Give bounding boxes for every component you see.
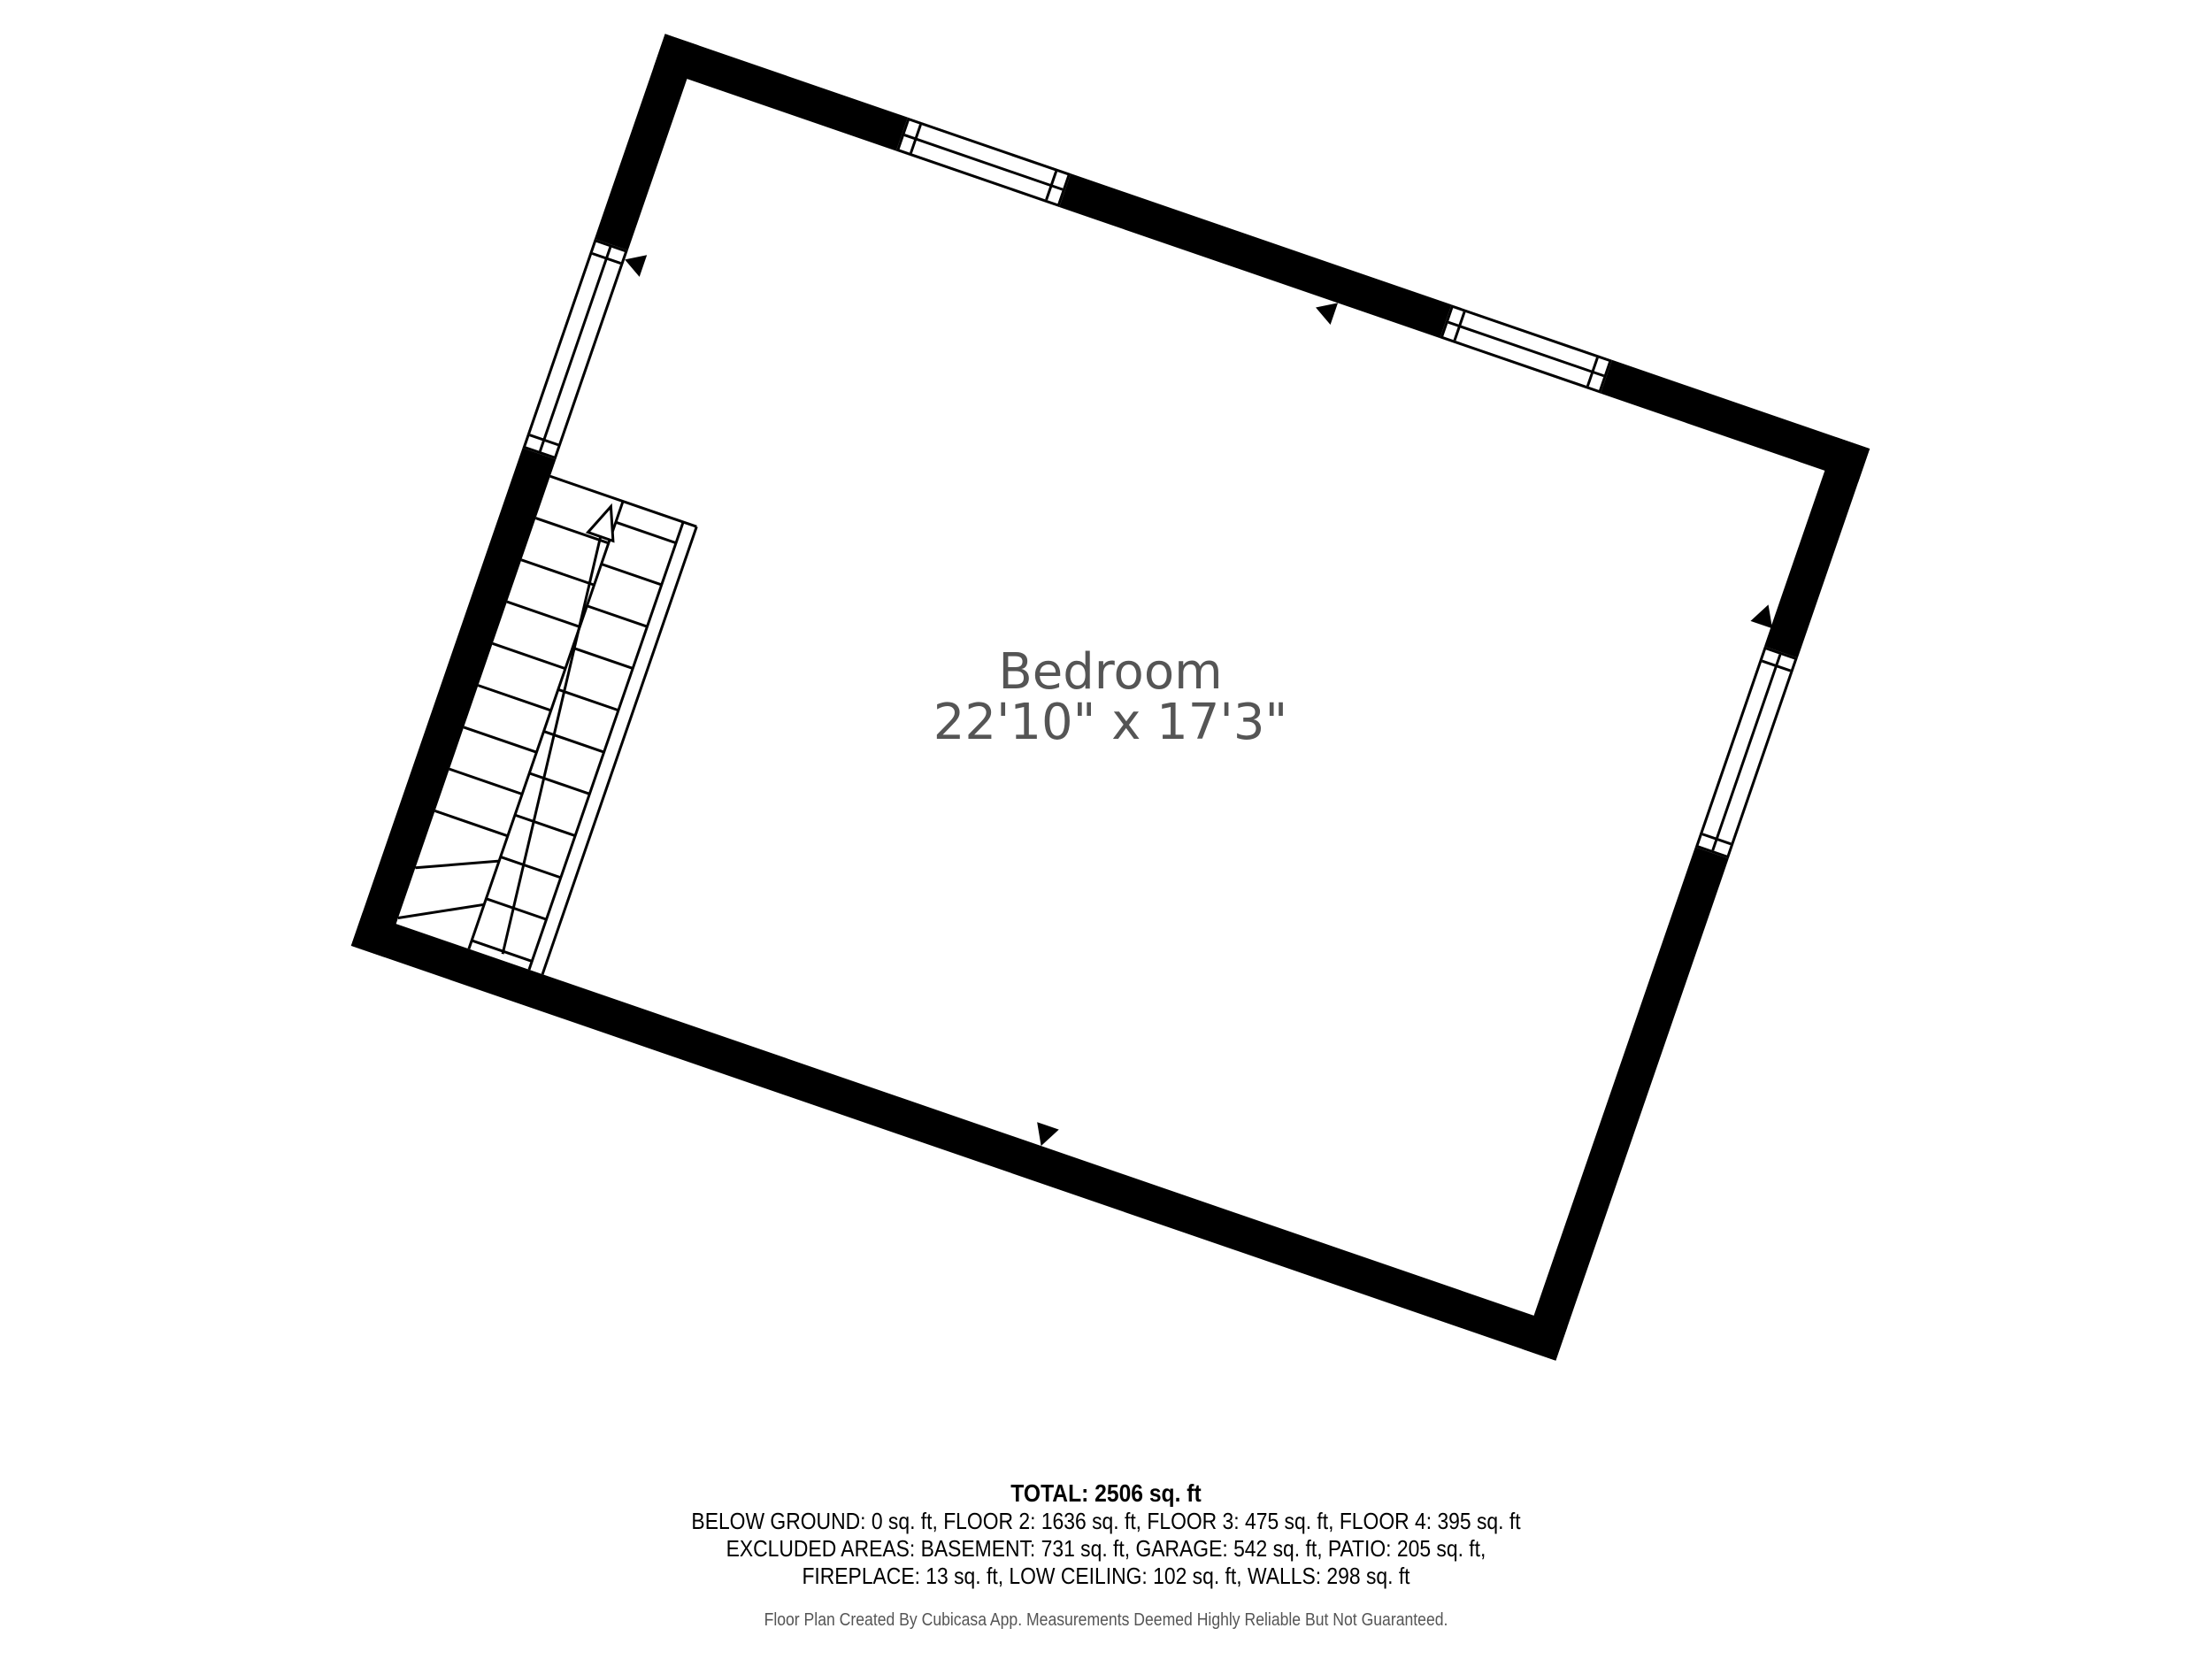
floor-breakdown-line: BELOW GROUND: 0 sq. ft, FLOOR 2: 1636 sq… <box>133 1508 2079 1535</box>
excluded-areas-line-2: FIREPLACE: 13 sq. ft, LOW CEILING: 102 s… <box>133 1563 2079 1590</box>
excluded-areas-line: EXCLUDED AREAS: BASEMENT: 731 sq. ft, GA… <box>133 1535 2079 1563</box>
window-glass-line <box>904 134 1064 190</box>
area-summary: TOTAL: 2506 sq. ft BELOW GROUND: 0 sq. f… <box>133 1479 2079 1590</box>
room-dimensions: 22'10" x 17'3" <box>933 697 1287 748</box>
total-area-line: TOTAL: 2506 sq. ft <box>133 1479 2079 1508</box>
window-top-0 <box>896 118 1071 207</box>
floor-plan-canvas: Bedroom 22'10" x 17'3" TOTAL: 2506 sq. f… <box>0 0 2212 1659</box>
disclaimer-footer: Floor Plan Created By Cubicasa App. Meas… <box>133 1610 2079 1631</box>
room-label: Bedroom 22'10" x 17'3" <box>473 215 1747 1179</box>
room-name: Bedroom <box>998 647 1222 697</box>
